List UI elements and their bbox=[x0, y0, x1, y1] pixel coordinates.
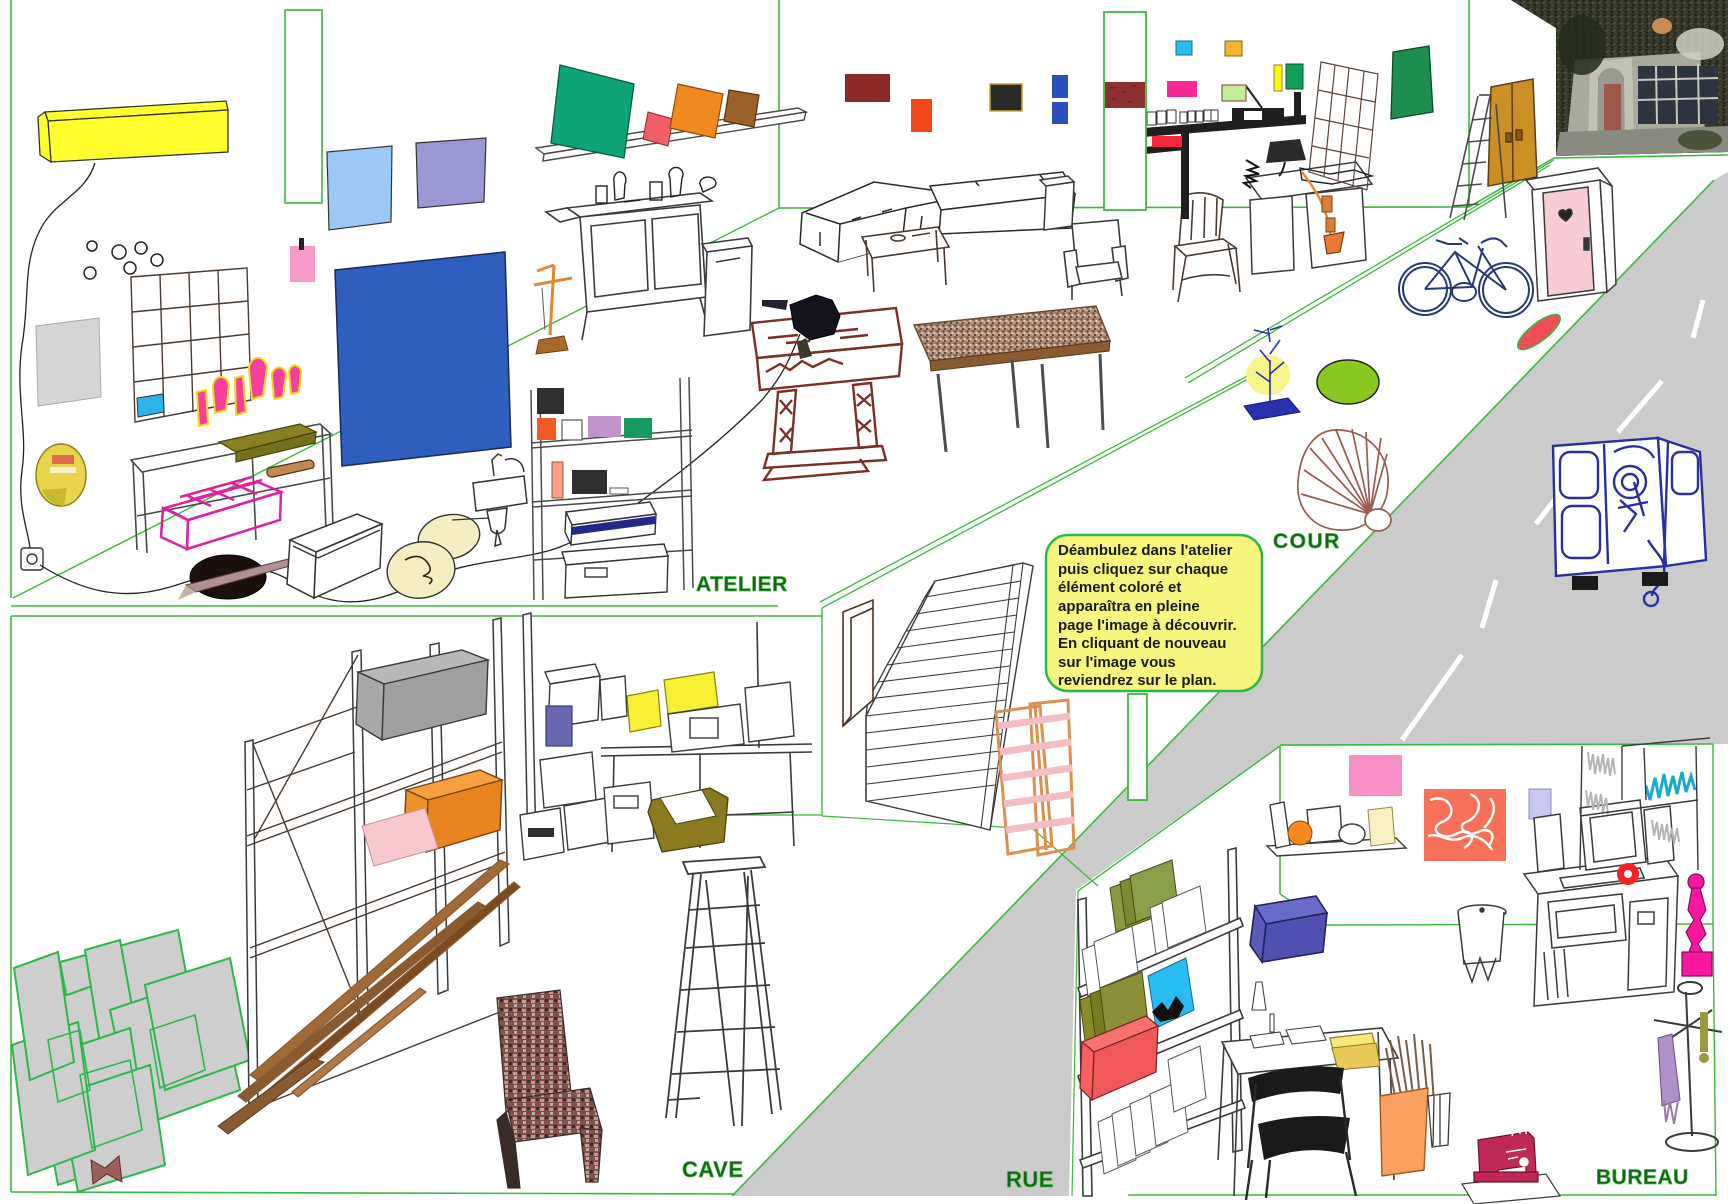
svg-text:apparaîtra en pleine: apparaîtra en pleine bbox=[1058, 598, 1200, 615]
svg-text:En cliquant de nouveau: En cliquant de nouveau bbox=[1058, 635, 1226, 652]
svg-text:puis cliquez sur chaque: puis cliquez sur chaque bbox=[1058, 561, 1228, 578]
svg-text:Déambulez dans l'atelier: Déambulez dans l'atelier bbox=[1058, 542, 1233, 559]
svg-text:ATELIER: ATELIER bbox=[696, 573, 788, 596]
svg-text:reviendrez sur le plan.: reviendrez sur le plan. bbox=[1058, 672, 1216, 689]
svg-text:COUR: COUR bbox=[1273, 530, 1341, 553]
svg-text:BUREAU: BUREAU bbox=[1596, 1166, 1689, 1189]
svg-text:élément coloré et: élément coloré et bbox=[1058, 579, 1181, 596]
svg-text:sur l'image vous: sur l'image vous bbox=[1058, 654, 1176, 671]
svg-text:page l'image à découvrir.: page l'image à découvrir. bbox=[1058, 617, 1237, 634]
svg-text:CAVE: CAVE bbox=[682, 1157, 744, 1182]
svg-text:RUE: RUE bbox=[1006, 1167, 1054, 1192]
